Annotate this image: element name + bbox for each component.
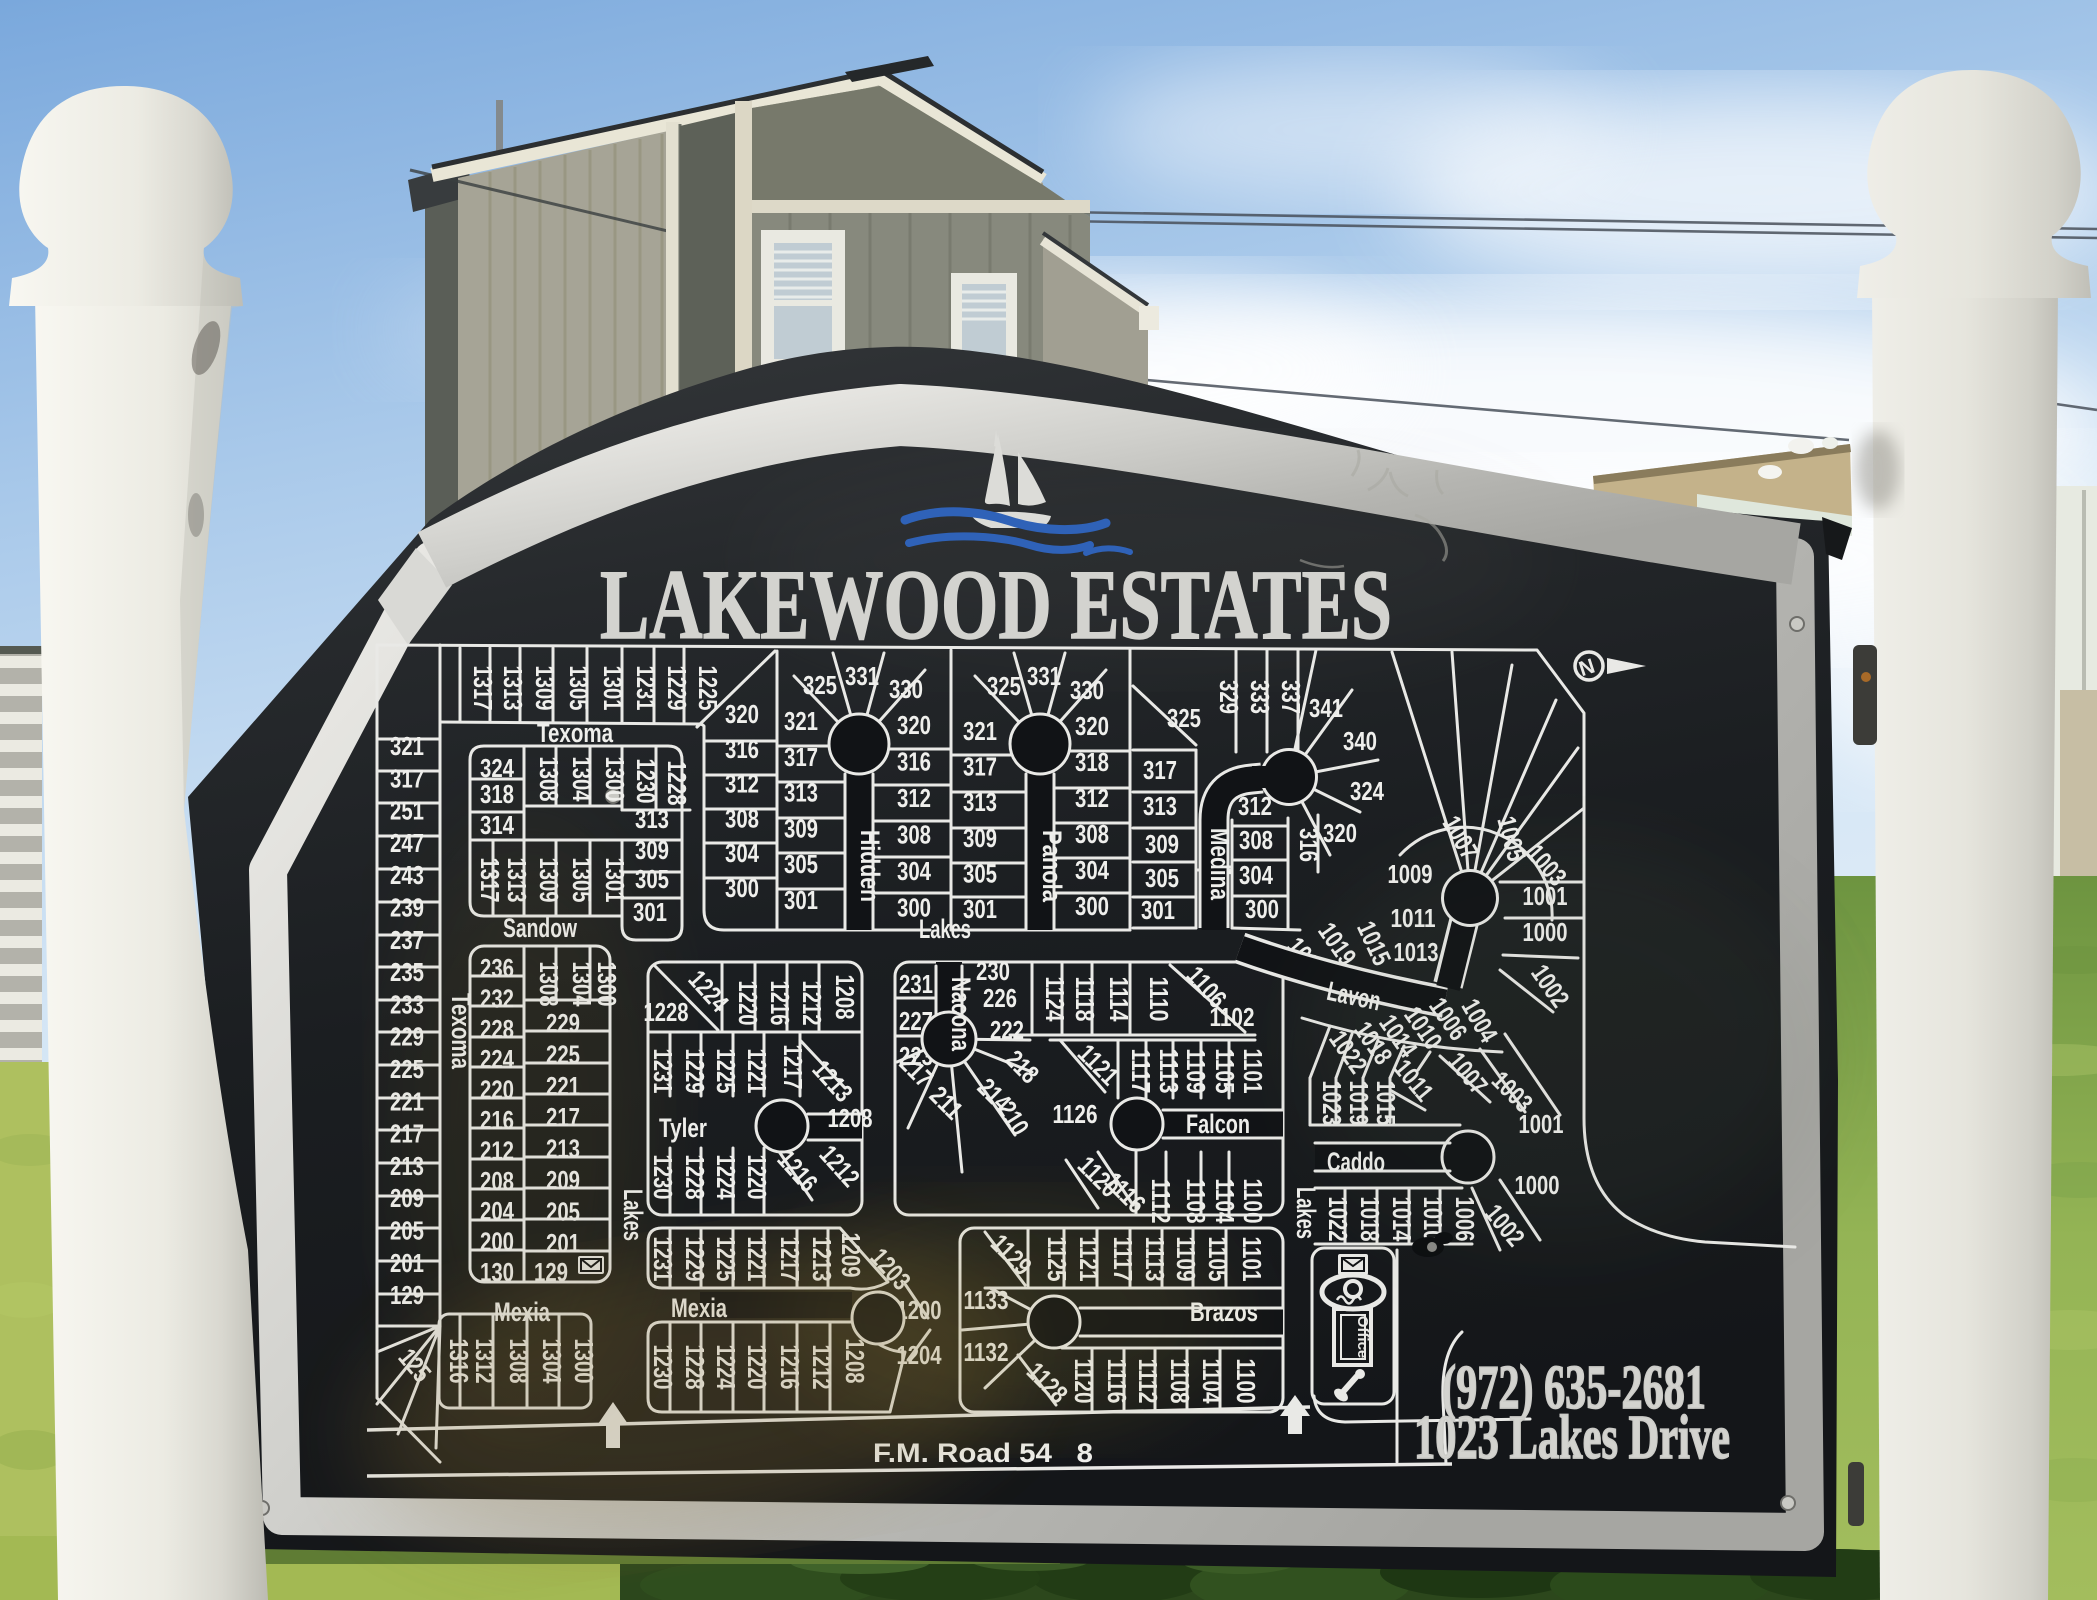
svg-text:Medina: Medina: [1205, 828, 1235, 901]
svg-text:308: 308: [725, 803, 759, 833]
svg-text:316: 316: [1294, 828, 1324, 862]
svg-text:305: 305: [1145, 863, 1179, 893]
svg-text:1023 Lakes Drive: 1023 Lakes Drive: [1414, 1404, 1730, 1472]
svg-text:1108: 1108: [1181, 1179, 1211, 1224]
svg-text:231: 231: [899, 969, 933, 999]
svg-text:1216: 1216: [765, 981, 795, 1026]
svg-text:313: 313: [963, 787, 997, 817]
svg-text:239: 239: [390, 893, 424, 923]
svg-text:340: 340: [1343, 726, 1377, 756]
svg-text:230: 230: [976, 956, 1010, 986]
svg-text:1104: 1104: [1210, 1179, 1240, 1224]
svg-text:313: 313: [784, 778, 818, 808]
svg-text:330: 330: [1070, 675, 1104, 705]
svg-text:318: 318: [1075, 747, 1109, 777]
svg-text:Tyler: Tyler: [659, 1113, 707, 1143]
svg-text:325: 325: [987, 671, 1021, 701]
svg-text:333: 333: [1245, 680, 1275, 714]
svg-text:1301: 1301: [598, 666, 628, 711]
svg-text:1217: 1217: [778, 1045, 808, 1090]
svg-text:305: 305: [963, 858, 997, 888]
svg-text:1220: 1220: [733, 981, 763, 1026]
svg-text:1300: 1300: [600, 757, 630, 802]
svg-text:Panola: Panola: [1037, 830, 1067, 903]
svg-text:251: 251: [390, 796, 424, 826]
svg-text:1225: 1225: [693, 666, 723, 711]
svg-text:308: 308: [1075, 819, 1109, 849]
svg-text:300: 300: [1245, 894, 1279, 924]
svg-text:1118: 1118: [1070, 977, 1100, 1022]
svg-text:309: 309: [635, 835, 669, 865]
svg-text:300: 300: [1075, 891, 1109, 921]
svg-text:317: 317: [390, 763, 424, 793]
svg-text:325: 325: [803, 670, 837, 700]
svg-text:1231: 1231: [631, 666, 661, 711]
svg-text:1313: 1313: [498, 666, 528, 711]
svg-text:1110: 1110: [1144, 977, 1174, 1022]
svg-text:321: 321: [963, 716, 997, 746]
svg-text:312: 312: [1075, 783, 1109, 813]
svg-text:304: 304: [1239, 860, 1273, 890]
svg-text:305: 305: [784, 849, 818, 879]
svg-text:Falcon: Falcon: [1186, 1109, 1250, 1139]
svg-text:1224: 1224: [711, 1155, 741, 1200]
svg-text:Office: Office: [1354, 1316, 1371, 1359]
svg-text:Hidden: Hidden: [855, 830, 885, 902]
svg-text:341: 341: [1309, 693, 1343, 723]
svg-text:320: 320: [897, 710, 931, 740]
svg-text:1220: 1220: [742, 1155, 772, 1200]
svg-text:1113: 1113: [1154, 1049, 1184, 1094]
svg-text:309: 309: [963, 823, 997, 853]
svg-text:243: 243: [390, 860, 424, 890]
svg-text:1105: 1105: [1210, 1049, 1240, 1094]
svg-text:304: 304: [897, 856, 931, 886]
svg-text:1301: 1301: [600, 858, 630, 903]
svg-text:1101: 1101: [1237, 1237, 1267, 1282]
svg-text:331: 331: [1027, 661, 1061, 691]
svg-text:320: 320: [1323, 818, 1357, 848]
svg-text:1231: 1231: [648, 1049, 678, 1094]
svg-text:308: 308: [897, 820, 931, 850]
svg-text:1126: 1126: [1053, 1099, 1098, 1129]
svg-text:313: 313: [635, 804, 669, 834]
svg-text:1304: 1304: [567, 757, 597, 802]
svg-text:LAKEWOOD ESTATES: LAKEWOOD ESTATES: [600, 549, 1392, 660]
svg-text:1221: 1221: [742, 1049, 772, 1094]
svg-text:1305: 1305: [564, 666, 594, 711]
svg-text:1225: 1225: [711, 1049, 741, 1094]
svg-text:312: 312: [725, 769, 759, 799]
svg-text:1208: 1208: [830, 975, 860, 1020]
svg-text:305: 305: [635, 864, 669, 894]
svg-text:316: 316: [897, 747, 931, 777]
svg-text:330: 330: [889, 674, 923, 704]
svg-text:1229: 1229: [680, 1049, 710, 1094]
svg-text:Texoma: Texoma: [537, 718, 614, 748]
svg-text:1230: 1230: [631, 759, 661, 804]
svg-text:301: 301: [784, 885, 818, 915]
svg-text:320: 320: [725, 699, 759, 729]
svg-text:321: 321: [390, 731, 424, 761]
svg-text:Nacona: Nacona: [946, 977, 976, 1052]
svg-text:1117: 1117: [1126, 1049, 1156, 1094]
svg-text:1112: 1112: [1146, 1179, 1176, 1224]
svg-text:1109: 1109: [1181, 1049, 1211, 1094]
svg-text:317: 317: [1143, 755, 1177, 785]
svg-text:300: 300: [725, 873, 759, 903]
svg-text:317: 317: [784, 742, 818, 772]
svg-text:Lakes: Lakes: [1291, 1187, 1321, 1239]
svg-text:309: 309: [784, 813, 818, 843]
svg-text:1102: 1102: [1210, 1002, 1255, 1032]
svg-text:301: 301: [1141, 895, 1175, 925]
svg-text:1229: 1229: [662, 666, 692, 711]
svg-text:324: 324: [1350, 776, 1384, 806]
svg-text:301: 301: [633, 897, 667, 927]
svg-text:1101: 1101: [1238, 1049, 1268, 1094]
svg-text:1317: 1317: [468, 666, 498, 711]
svg-text:1100: 1100: [1238, 1179, 1268, 1224]
svg-text:337: 337: [1276, 680, 1306, 714]
svg-text:318: 318: [480, 779, 514, 809]
svg-text:329: 329: [1214, 680, 1244, 714]
svg-text:1230: 1230: [648, 1155, 678, 1200]
svg-text:1114: 1114: [1104, 977, 1134, 1022]
svg-text:237: 237: [390, 925, 424, 955]
svg-text:325: 325: [1167, 703, 1201, 733]
svg-text:316: 316: [725, 734, 759, 764]
svg-text:1228: 1228: [680, 1155, 710, 1200]
svg-text:308: 308: [1239, 825, 1273, 855]
svg-text:314: 314: [480, 810, 514, 840]
svg-text:247: 247: [390, 828, 424, 858]
svg-text:317: 317: [963, 752, 997, 782]
svg-text:331: 331: [845, 661, 879, 691]
svg-text:1212: 1212: [797, 981, 827, 1026]
svg-text:304: 304: [725, 838, 759, 868]
svg-text:Lakes: Lakes: [919, 914, 971, 944]
svg-text:321: 321: [784, 706, 818, 736]
svg-text:222: 222: [990, 1015, 1024, 1045]
svg-text:226: 226: [983, 983, 1017, 1013]
svg-text:1308: 1308: [534, 757, 564, 802]
svg-text:320: 320: [1075, 711, 1109, 741]
svg-text:312: 312: [897, 783, 931, 813]
svg-text:1100: 1100: [1231, 1359, 1261, 1404]
svg-text:309: 309: [1145, 829, 1179, 859]
svg-text:304: 304: [1075, 855, 1109, 885]
svg-text:313: 313: [1143, 791, 1177, 821]
svg-text:1208: 1208: [828, 1103, 873, 1133]
svg-text:1309: 1309: [530, 666, 560, 711]
svg-text:1228: 1228: [644, 997, 689, 1027]
svg-text:1124: 1124: [1040, 977, 1070, 1022]
svg-text:1228: 1228: [662, 761, 692, 806]
